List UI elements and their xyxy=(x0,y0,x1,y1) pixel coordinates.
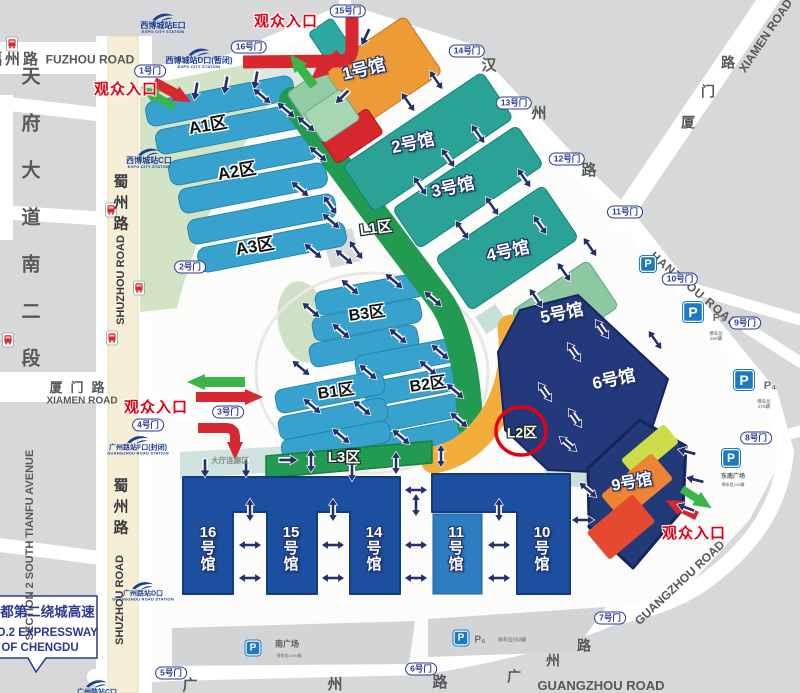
expo-venue-map: 福州路 FUZHOU ROAD 天 府 大 道 南 二 段 SECTION 2 … xyxy=(0,0,800,693)
entrance-arrow-icon xyxy=(405,541,427,549)
entrance-arrow-icon xyxy=(239,574,261,582)
entrance-arrow-icon xyxy=(405,574,427,582)
entrance-arrow-icon xyxy=(572,516,594,524)
xiamen-road-west xyxy=(0,372,112,402)
south-plaza-block xyxy=(172,621,415,666)
bus-stop-icon xyxy=(106,203,117,217)
hall-11-building xyxy=(433,514,482,594)
map-canvas xyxy=(0,0,800,693)
entrance-arrow-icon xyxy=(322,541,344,549)
entrance-arrow-icon xyxy=(246,499,254,521)
entrance-arrow-icon xyxy=(392,452,400,474)
bus-stop-icon xyxy=(107,331,118,345)
entrance-arrow-icon xyxy=(307,450,315,472)
entrance-arrow-icon xyxy=(437,445,445,467)
entrance-arrow-icon xyxy=(488,541,510,549)
entrance-arrow-icon xyxy=(239,541,261,549)
entrance-arrow-icon xyxy=(322,574,344,582)
entrance-arrow-icon xyxy=(405,486,427,494)
entrance-arrow-icon xyxy=(488,574,510,582)
halls-14-15-16-building xyxy=(183,477,400,594)
bus-stop-icon xyxy=(7,37,18,51)
entrance-arrow-icon xyxy=(495,499,503,521)
entrance-arrow-icon xyxy=(412,494,420,516)
entrance-arrow-icon xyxy=(348,459,356,481)
bus-stop-icon xyxy=(134,281,145,295)
bus-stop-icon xyxy=(3,333,14,347)
entrance-arrow-icon xyxy=(329,499,337,521)
